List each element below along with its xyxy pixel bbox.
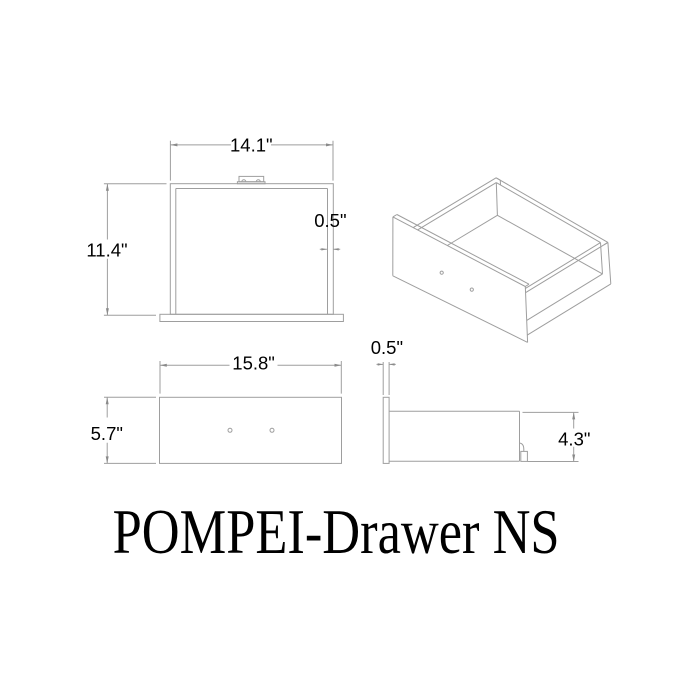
svg-text:4.3": 4.3" [558,428,590,449]
svg-text:14.1": 14.1" [230,135,273,156]
svg-text:0.5": 0.5" [314,210,346,231]
svg-text:15.8": 15.8" [232,353,275,374]
svg-text:POMPEI-Drawer NS: POMPEI-Drawer NS [113,497,560,567]
svg-text:0.5": 0.5" [371,337,403,358]
svg-text:5.7": 5.7" [91,423,123,444]
svg-text:11.4": 11.4" [86,240,127,261]
